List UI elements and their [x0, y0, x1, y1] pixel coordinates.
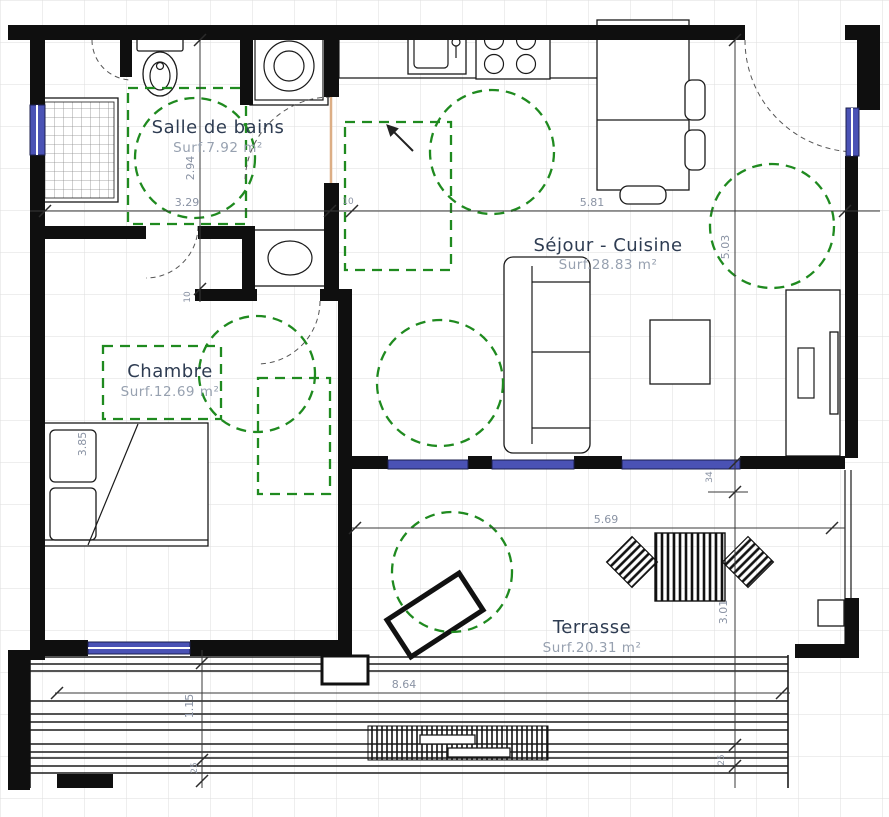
wall-bedroom-top-left	[195, 289, 257, 301]
dim-living-height: 5.03	[719, 235, 732, 260]
window-living-3	[622, 460, 740, 469]
wall-bath-partition	[240, 25, 253, 105]
wall-bath-bedroom-left	[30, 226, 146, 239]
bathroom-area: Surf.7.92 m²	[173, 140, 263, 156]
wall-deck-left	[8, 650, 30, 790]
dim-window-pillar: 34	[705, 471, 715, 483]
tv	[830, 332, 838, 414]
wall-right-upper	[857, 25, 880, 110]
floor-plan: 3.29 10 5.81 2.94 10 5.03 34 3.01 25 3.8…	[0, 0, 889, 817]
wall-top	[8, 25, 745, 40]
planter	[818, 600, 844, 626]
bedroom-name: Chambre	[127, 361, 213, 382]
dim-terrace-width: 5.69	[594, 513, 619, 526]
wall-bedroom-bottom-right	[190, 640, 352, 656]
wall-terrace-bottom-right	[795, 644, 859, 658]
wall-living-bottom-3	[574, 456, 622, 469]
room-label-terrace: Terrasse Surf.20.31 m²	[543, 617, 642, 656]
wall-living-bottom-4	[740, 456, 845, 469]
dim-terrace-edge-left: 25	[190, 762, 200, 773]
wall-entry-upper	[324, 25, 339, 97]
living-name: Séjour - Cuisine	[533, 235, 682, 256]
dim-terrace-edge-right: 25	[717, 754, 727, 765]
living-area: Surf.28.83 m²	[559, 257, 658, 273]
terrace-name: Terrasse	[552, 617, 631, 638]
window-living-1	[388, 460, 468, 469]
tv-unit	[786, 290, 840, 456]
dim-wall-mid: 10	[183, 291, 193, 303]
wall-living-bottom-2	[468, 456, 492, 469]
window-living-2	[492, 460, 574, 469]
chair	[620, 186, 666, 204]
bedroom-area: Surf.12.69 m²	[121, 384, 220, 400]
grid	[0, 0, 889, 817]
floor-plan-drawing: 3.29 10 5.81 2.94 10 5.03 34 3.01 25 3.8…	[0, 0, 889, 817]
wall-left-upper	[30, 25, 45, 105]
wall-living-bottom-1	[352, 456, 388, 469]
wall-deck-bottom	[57, 774, 113, 788]
dim-wall-top: 10	[342, 197, 354, 207]
dim-entry-height: 2.94	[184, 156, 197, 181]
wall-entry-lower	[324, 183, 339, 301]
dim-living-width: 5.81	[580, 196, 605, 209]
chair	[685, 80, 705, 120]
chair	[685, 130, 705, 170]
bathroom-name: Salle de bains	[152, 117, 285, 138]
deck-step	[420, 735, 475, 744]
deck-step	[448, 748, 510, 757]
bed	[44, 423, 208, 546]
wall-bedroom-bottom-left	[30, 640, 88, 656]
wall-corridor	[242, 239, 255, 291]
dim-deck-width: 8.64	[392, 678, 417, 691]
dining-table	[597, 20, 705, 204]
dim-bedroom-height: 3.85	[76, 432, 89, 457]
room-label-bedroom: Chambre Surf.12.69 m²	[121, 361, 220, 400]
pillow	[50, 488, 96, 540]
dim-bathroom-width: 3.29	[175, 196, 200, 209]
pillow	[50, 430, 96, 482]
wall-bedroom-right	[338, 298, 352, 656]
planter	[322, 656, 368, 684]
washbasin	[252, 230, 328, 286]
dim-deck-side-height: 1.15	[183, 694, 196, 719]
sofa	[504, 257, 590, 453]
terrace-area: Surf.20.31 m²	[543, 640, 642, 656]
wall-right	[845, 156, 858, 458]
dim-terrace-height: 3.01	[717, 600, 730, 625]
wall-wc-partition	[120, 25, 132, 77]
wall-bath-bedroom-right	[198, 226, 255, 239]
coffee-table	[650, 320, 710, 384]
